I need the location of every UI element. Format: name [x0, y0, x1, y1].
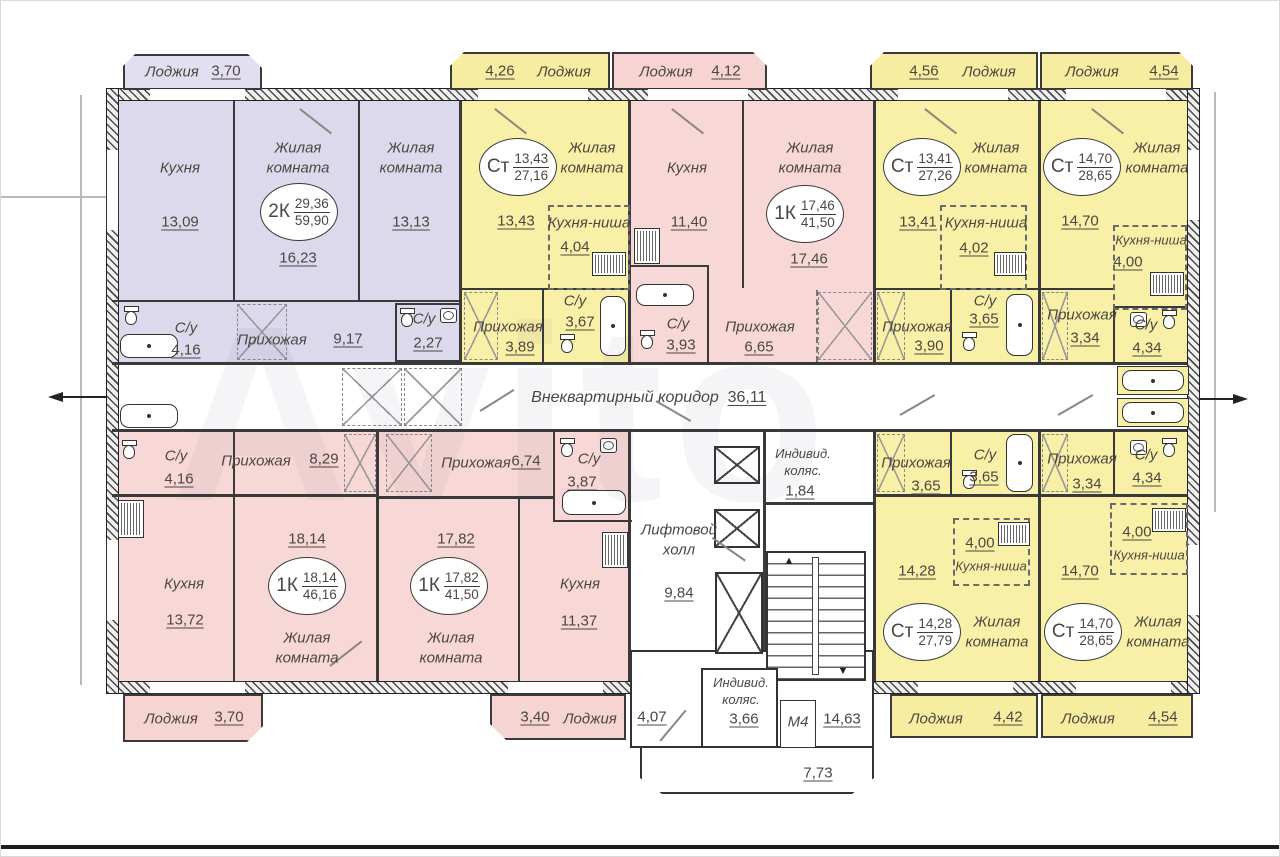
wall — [553, 432, 555, 522]
room-area: 4,00 — [1113, 254, 1142, 271]
loggia-area: 4,54 — [1149, 63, 1178, 80]
room-label: Прихожая — [441, 455, 511, 472]
loggia-area: 3,40 — [520, 709, 549, 726]
wall — [873, 432, 876, 681]
window — [150, 681, 245, 694]
loggia-label: Лоджия — [563, 711, 617, 728]
badge-living-area: 29,36 — [294, 196, 330, 213]
room-area: 18,14 — [288, 531, 326, 548]
corridor-wall-bottom — [112, 429, 1187, 432]
loggia-area: 4,54 — [1148, 709, 1177, 726]
badge-total-area: 41,50 — [801, 215, 835, 231]
closet-x — [404, 368, 462, 426]
room-area: 3,34 — [1072, 476, 1101, 493]
m4-label: М4 — [788, 714, 809, 731]
wall — [378, 496, 555, 499]
room-area: 17,82 — [437, 531, 475, 548]
badge-living-area: 13,43 — [513, 151, 549, 168]
room-label: Кухня — [164, 576, 204, 593]
section-arrow-right — [1233, 394, 1248, 404]
wall — [358, 101, 360, 301]
room-area: 4,16 — [164, 471, 193, 488]
room-label: С/у — [165, 448, 188, 465]
window — [106, 150, 119, 230]
room-label: Прихожая — [1047, 451, 1117, 468]
window — [1187, 545, 1200, 615]
room-label: Кухня — [560, 576, 600, 593]
loggia-area: 3,70 — [214, 709, 243, 726]
room-area: 4,04 — [560, 239, 589, 256]
wall — [376, 432, 379, 681]
window — [1076, 681, 1171, 694]
room-label: С/у — [974, 447, 997, 464]
room-area: 14,70 — [1061, 563, 1099, 580]
window — [648, 88, 748, 101]
corridor-label: Внеквартирный коридор — [531, 389, 719, 407]
window — [898, 88, 1008, 101]
loggia-area: 4,26 — [485, 63, 514, 80]
wall — [233, 101, 235, 301]
loggia-label: Лоджия — [1061, 711, 1115, 728]
room-area: 2,27 — [413, 335, 442, 352]
badge-living-area: 14,70 — [1078, 616, 1114, 633]
badge-total-area: 27,16 — [514, 168, 548, 184]
loggia-area: 3,70 — [211, 63, 240, 80]
room-area: 4,34 — [1132, 340, 1161, 357]
room-area: 6,65 — [744, 339, 773, 356]
room-area: 11,37 — [561, 613, 597, 630]
badge-living-area: 13,41 — [917, 151, 953, 168]
room-label: С/у — [1135, 447, 1158, 464]
kitchen-appliance-icon — [1152, 508, 1186, 532]
badge-living-area: 17,46 — [800, 198, 836, 215]
badge-living-area: 17,82 — [444, 570, 480, 587]
wall — [553, 520, 632, 522]
room-area: 13,43 — [497, 213, 535, 230]
m4-area: 14,63 — [823, 711, 861, 728]
badge-type: Ст — [1052, 621, 1074, 643]
badge-total-area: 59,90 — [295, 213, 329, 229]
room-label: Кухня-ниша — [1115, 233, 1186, 248]
loggia-area: 4,12 — [711, 63, 740, 80]
room-label: Жилая комната — [253, 139, 343, 178]
door-swing — [1058, 394, 1093, 415]
loggia-label: Лоджия — [1065, 64, 1119, 81]
apartment-badge-2k: 2К 29,3659,90 — [260, 183, 338, 241]
room-area: 17,46 — [790, 251, 828, 268]
apartment-badge-st1: Ст 13,4327,16 — [479, 138, 557, 196]
window — [918, 681, 1013, 694]
corridor-area: 36,11 — [728, 389, 767, 407]
room-area: 3,65 — [911, 478, 940, 495]
window — [150, 88, 245, 101]
room-label: Жилая комната — [951, 139, 1041, 178]
kitchen-appliance-icon — [634, 228, 660, 264]
room-area: 13,09 — [161, 214, 199, 231]
exterior-line — [80, 95, 82, 685]
kitchen-appliance-icon — [998, 522, 1030, 546]
room-area: 14,70 — [1061, 213, 1099, 230]
wall — [631, 265, 709, 267]
wall — [875, 494, 1040, 497]
room-label: Жилая комната — [952, 613, 1042, 652]
bathtub-icon — [1122, 370, 1184, 391]
room-area: 3,65 — [969, 469, 998, 486]
room-area: 13,41 — [899, 214, 937, 231]
exterior-line — [1214, 92, 1216, 512]
toilet-icon — [1162, 310, 1177, 330]
window — [508, 681, 603, 694]
bathtub-icon — [600, 296, 626, 356]
door-swing — [480, 389, 515, 412]
badge-total-area: 46,16 — [303, 587, 337, 603]
loggia-label: Лоджия — [639, 64, 693, 81]
closet-x — [818, 292, 872, 360]
room-area: 6,74 — [511, 453, 540, 470]
toilet-icon — [1162, 438, 1177, 458]
loggia-label: Лоджия — [909, 711, 963, 728]
room-area: 4,02 — [959, 240, 988, 257]
loggia-label: Лоджия — [962, 64, 1016, 81]
badge-total-area: 28,65 — [1079, 633, 1113, 649]
closet-x — [1042, 292, 1068, 360]
room-label: С/у — [974, 293, 997, 310]
badge-type: 1К — [418, 575, 440, 597]
loggia-area: 4,56 — [909, 63, 938, 80]
elevator-shaft — [714, 446, 760, 484]
room-label: С/у — [175, 320, 198, 337]
bathtub-icon — [1122, 402, 1184, 423]
room-label: Жилая комната — [765, 139, 855, 178]
room-label: Кухня-ниша — [1113, 548, 1184, 563]
room-label: Прихожая — [882, 319, 952, 336]
stair-rail — [812, 557, 819, 675]
room-label: Прихожая — [881, 455, 951, 472]
room-area: 3,87 — [567, 474, 596, 491]
room-label: Кухня-ниша — [945, 215, 1027, 232]
badge-type: Ст — [487, 156, 509, 178]
wall — [707, 265, 709, 362]
apartment-badge-1k-c: 1К 17,8241,50 — [410, 557, 488, 615]
toilet-icon — [640, 330, 655, 350]
corridor-wall-top — [112, 362, 1187, 365]
bathtub-icon — [1006, 434, 1033, 492]
apartment-badge-st2: Ст 13,4127,26 — [883, 138, 961, 196]
toilet-icon — [560, 334, 575, 354]
wall — [112, 300, 462, 302]
room-label: Жилая комната — [1113, 613, 1203, 652]
room-label: Жилая комната — [1112, 139, 1202, 178]
bathtub-icon — [562, 490, 626, 515]
elevator-shaft — [715, 572, 763, 654]
apartment-badge-1k-a: 1К 17,4641,50 — [766, 185, 844, 243]
stair-up-arrow: ▲ — [784, 555, 795, 567]
room-area: 8,29 — [309, 451, 338, 468]
lift-hall-area: 9,84 — [664, 585, 693, 602]
wall — [112, 494, 378, 497]
room-label: Жилая комната — [260, 629, 355, 668]
room-area: 13,72 — [166, 612, 204, 629]
wall — [518, 497, 520, 681]
room-label: Кухня — [667, 160, 707, 177]
badge-type: Ст — [891, 156, 913, 178]
balcony-area: 7,73 — [803, 765, 832, 782]
apartment-badge-st5: Ст 14,7028,65 — [1044, 603, 1122, 661]
badge-total-area: 41,50 — [445, 587, 479, 603]
badge-type: 2К — [268, 201, 290, 223]
bathtub-icon — [120, 334, 178, 358]
section-arrow-left — [48, 392, 63, 402]
room-label: С/у — [578, 451, 601, 468]
stroller-room-area: 1,84 — [785, 483, 814, 500]
room-area: 3,65 — [969, 311, 998, 328]
badge-type: 1К — [774, 203, 796, 225]
room-area: 3,67 — [565, 314, 594, 331]
room-label: С/у — [564, 293, 587, 310]
apartment-badge-1k-b: 1К 18,1446,16 — [268, 557, 346, 615]
badge-total-area: 27,26 — [918, 168, 952, 184]
badge-living-area: 14,28 — [917, 616, 953, 633]
badge-living-area: 18,14 — [302, 570, 338, 587]
kitchen-appliance-icon — [1150, 272, 1184, 296]
sink-icon — [440, 308, 457, 323]
room-label: Прихожая — [237, 332, 307, 349]
badge-type: Ст — [1051, 156, 1073, 178]
window — [1066, 88, 1166, 101]
room-label: С/у — [667, 316, 690, 333]
kitchen-appliance-icon — [994, 252, 1026, 276]
room-area: 3,34 — [1070, 330, 1099, 347]
apartment-badge-st4: Ст 14,2827,79 — [883, 603, 961, 661]
room-label: Прихожая — [1047, 307, 1117, 324]
room-area: 13,13 — [392, 214, 430, 231]
bathtub-icon — [120, 404, 178, 428]
wall — [873, 101, 876, 362]
room-area: 4,00 — [1122, 524, 1151, 541]
image-bottom-edge — [0, 845, 1280, 849]
bathtub-icon — [636, 284, 694, 306]
window — [106, 540, 119, 620]
room-label: Кухня-ниша — [548, 215, 630, 232]
passage-area: 4,07 — [637, 709, 666, 726]
stroller-room-label: Индивид. коляс. — [764, 446, 842, 480]
loggia-area: 4,42 — [993, 709, 1022, 726]
door-swing — [900, 394, 935, 415]
loggia-label: Лоджия — [537, 64, 591, 81]
floor-plan: Avito — [0, 0, 1280, 857]
wall — [742, 101, 744, 288]
room-label: Кухня-ниша — [955, 559, 1026, 574]
wall — [1040, 288, 1115, 290]
window — [478, 88, 588, 101]
toilet-icon — [124, 306, 139, 326]
room-area: 4,34 — [1132, 470, 1161, 487]
stroller-room-label: Индивид. коляс. — [704, 675, 778, 709]
room-area: 14,28 — [898, 563, 936, 580]
toilet-icon — [962, 332, 977, 352]
room-area: 4,00 — [965, 535, 994, 552]
room-label: Жилая комната — [366, 139, 456, 178]
kitchen-appliance-icon — [602, 532, 628, 568]
toilet-icon — [560, 438, 575, 458]
badge-type: Ст — [891, 621, 913, 643]
badge-living-area: 14,70 — [1077, 151, 1113, 168]
kitchen-appliance-icon — [592, 252, 626, 276]
room-area: 3,90 — [914, 338, 943, 355]
room-label: С/у — [1135, 317, 1158, 334]
entrance-balcony — [640, 746, 874, 794]
badge-total-area: 27,79 — [918, 633, 952, 649]
section-mark-line — [1200, 398, 1234, 400]
kitchen-appliance-icon — [118, 500, 144, 538]
room-area: 3,93 — [666, 337, 695, 354]
closet-x — [342, 368, 402, 426]
sink-icon — [600, 438, 617, 453]
room-area: 3,89 — [505, 339, 534, 356]
wall — [763, 502, 875, 505]
bathtub-icon — [1006, 294, 1033, 356]
loggia-label: Лоджия — [145, 64, 199, 81]
room-label: Жилая комната — [547, 139, 637, 178]
apartment-badge-st3: Ст 14,7028,65 — [1043, 138, 1121, 196]
loggia-label: Лоджия — [144, 711, 198, 728]
badge-total-area: 28,65 — [1078, 168, 1112, 184]
room-label: С/у — [413, 311, 436, 328]
room-label: Прихожая — [221, 453, 291, 470]
exterior-line — [0, 196, 106, 198]
room-label: Жилая комната — [404, 629, 499, 668]
closet-x — [344, 434, 376, 492]
room-label: Прихожая — [473, 319, 543, 336]
section-mark-line — [62, 396, 106, 398]
toilet-icon — [122, 440, 137, 460]
lift-hall-label: Лифтовой холл — [632, 521, 727, 560]
room-area: 16,23 — [279, 250, 317, 267]
stair-down-arrow: ▼ — [838, 665, 849, 677]
room-label: Кухня — [160, 160, 200, 177]
room-area: 9,17 — [333, 331, 362, 348]
room-label: Прихожая — [725, 319, 795, 336]
closet-x — [386, 434, 432, 492]
room-area: 4,16 — [171, 342, 200, 359]
room-area: 11,40 — [671, 214, 707, 231]
badge-type: 1К — [276, 575, 298, 597]
stroller-room-area: 3,66 — [729, 711, 758, 728]
